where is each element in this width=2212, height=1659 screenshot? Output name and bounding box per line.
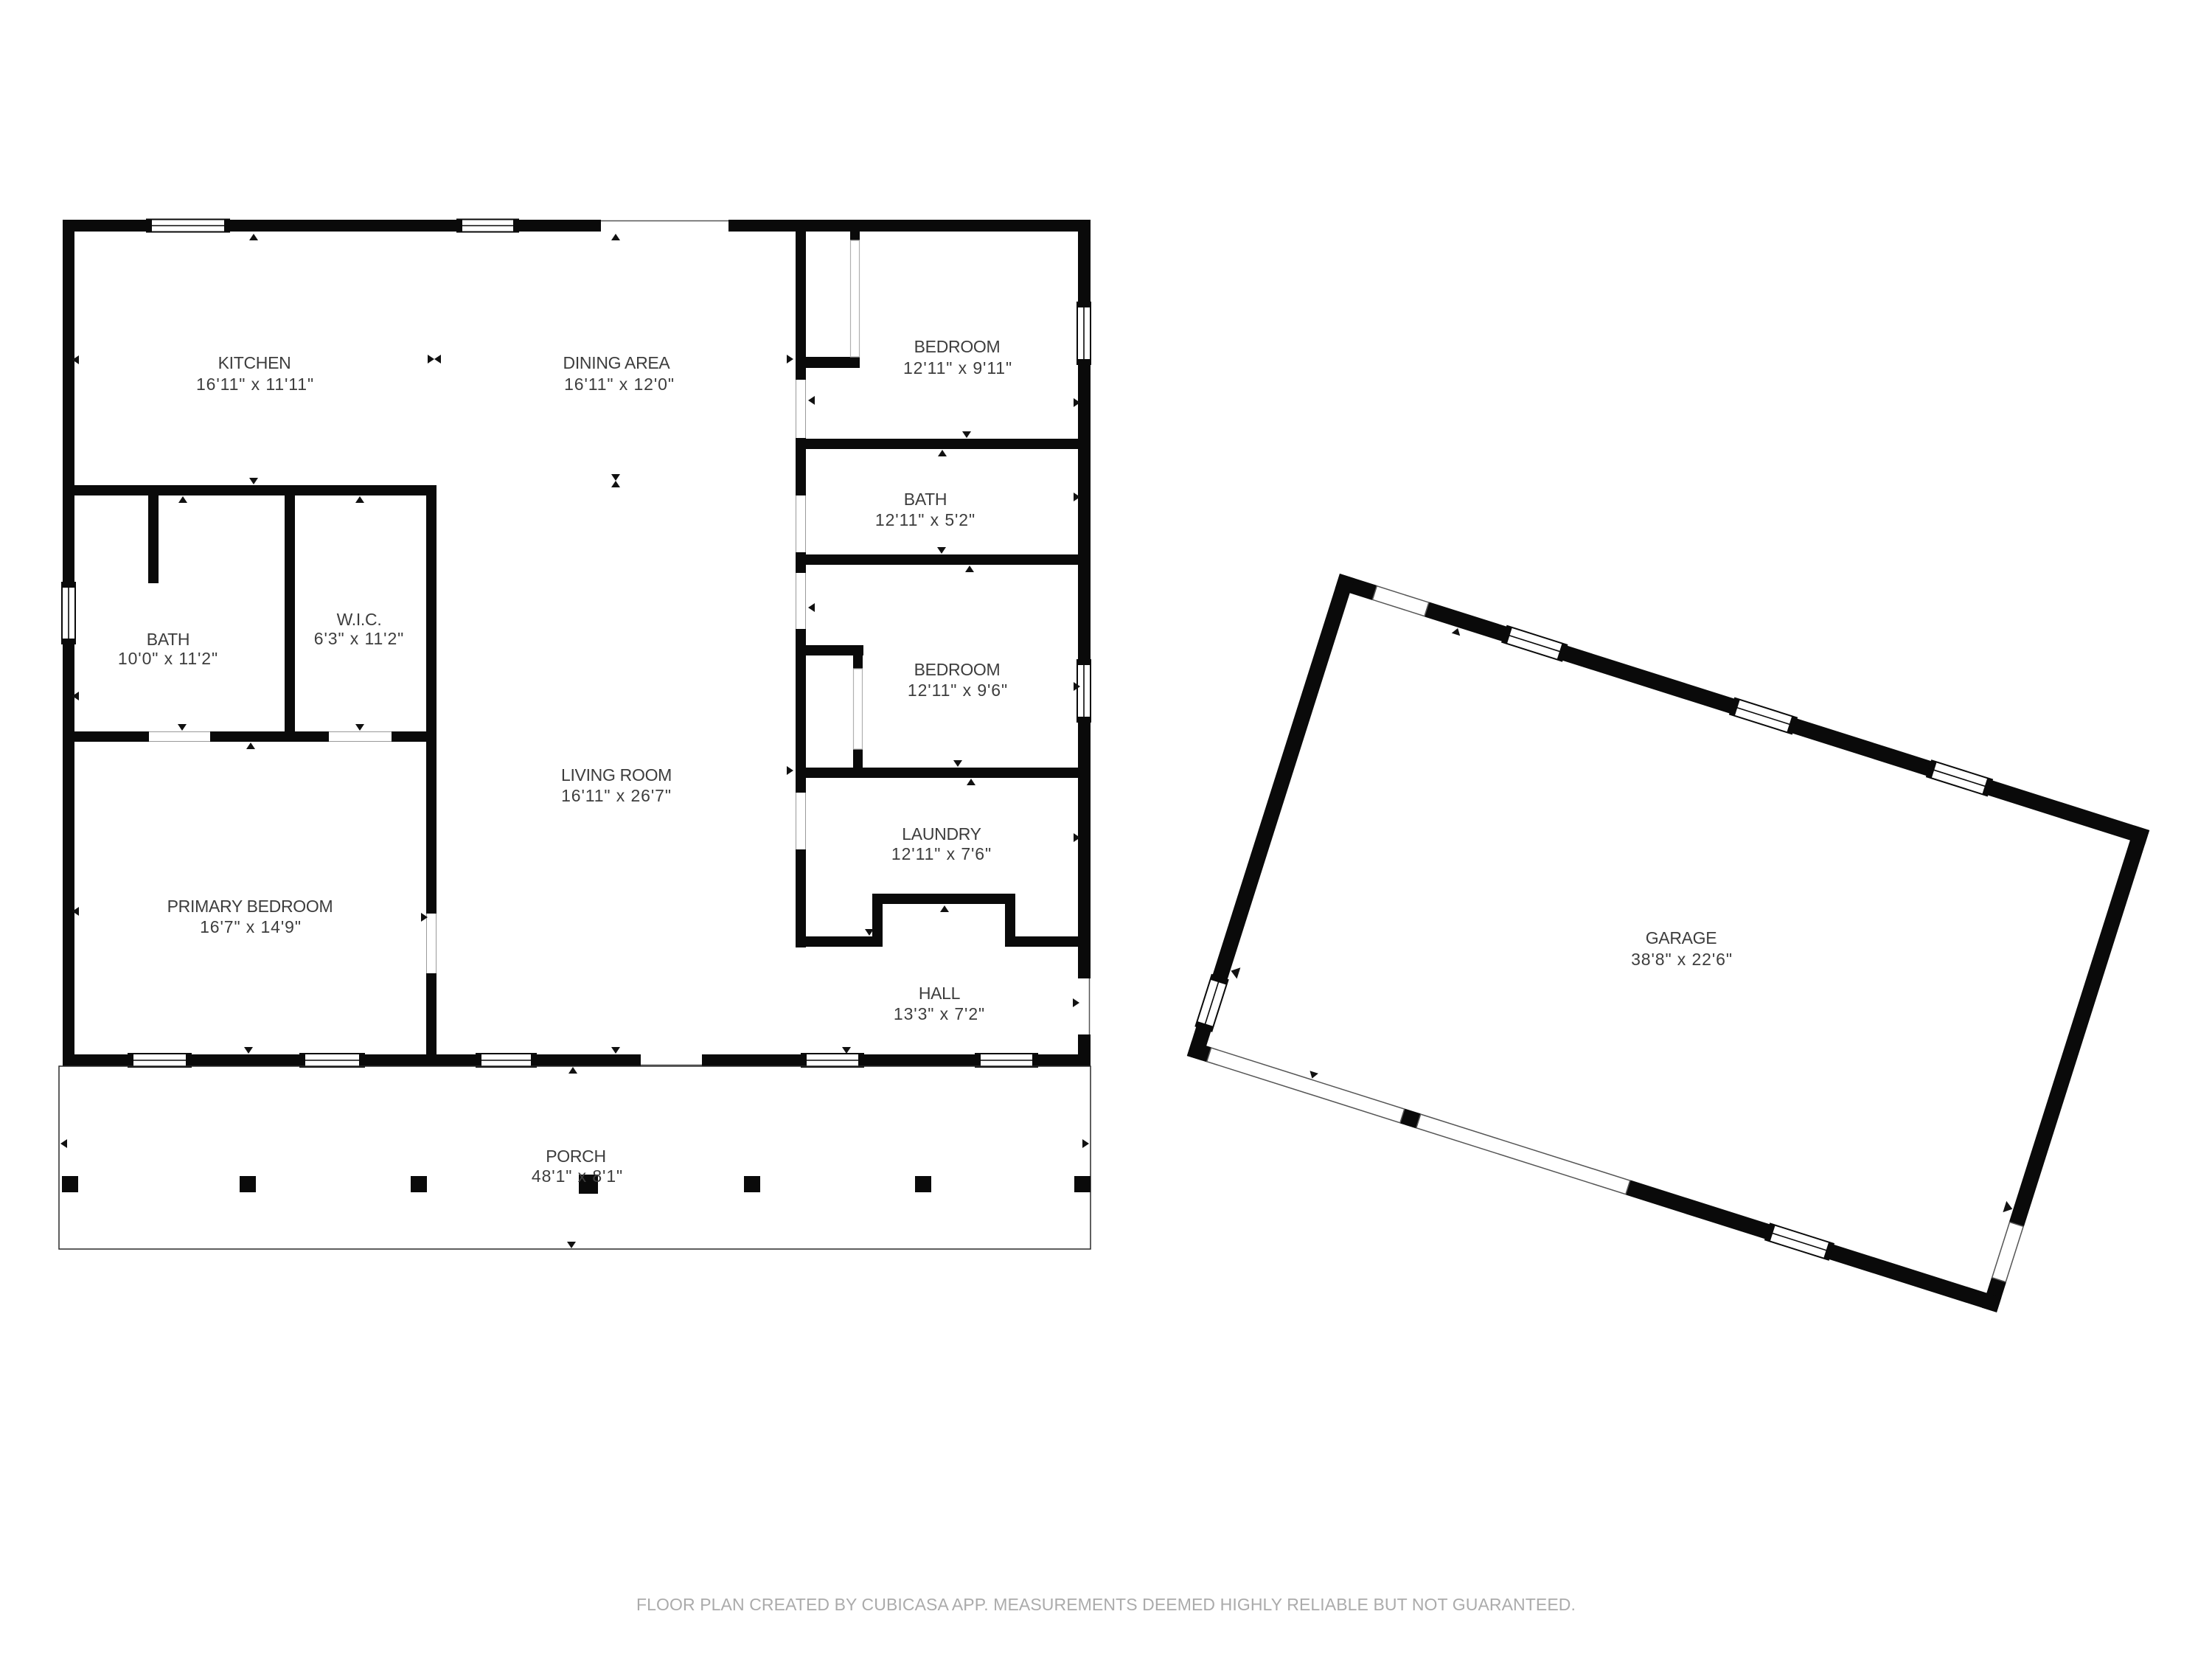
svg-text:16'7" x 14'9": 16'7" x 14'9" (200, 917, 302, 936)
svg-text:BATH: BATH (147, 630, 189, 649)
svg-text:12'11" x 5'2": 12'11" x 5'2" (875, 510, 975, 529)
svg-text:12'11" x 9'11": 12'11" x 9'11" (903, 358, 1012, 378)
svg-text:PORCH: PORCH (546, 1147, 606, 1166)
svg-text:FLOOR PLAN CREATED BY CUBICASA: FLOOR PLAN CREATED BY CUBICASA APP. MEAS… (636, 1595, 1576, 1614)
svg-text:10'0" x 11'2": 10'0" x 11'2" (118, 649, 218, 668)
svg-text:38'8" x 22'6": 38'8" x 22'6" (1631, 950, 1733, 969)
svg-text:16'11" x 11'11": 16'11" x 11'11" (196, 375, 314, 394)
svg-text:13'3" x 7'2": 13'3" x 7'2" (894, 1004, 985, 1023)
svg-text:DINING AREA: DINING AREA (563, 353, 671, 372)
svg-text:LIVING ROOM: LIVING ROOM (561, 765, 672, 785)
svg-text:BEDROOM: BEDROOM (914, 337, 1001, 356)
svg-text:48'1" x 8'1": 48'1" x 8'1" (532, 1166, 623, 1186)
svg-text:GARAGE: GARAGE (1646, 928, 1717, 947)
svg-text:PRIMARY BEDROOM: PRIMARY BEDROOM (167, 897, 333, 916)
svg-text:6'3" x 11'2": 6'3" x 11'2" (314, 629, 404, 648)
svg-text:BATH: BATH (904, 490, 947, 509)
svg-text:12'11" x 9'6": 12'11" x 9'6" (908, 681, 1008, 700)
svg-text:12'11" x 7'6": 12'11" x 7'6" (891, 844, 992, 863)
svg-text:W.I.C.: W.I.C. (337, 610, 382, 629)
svg-text:16'11" x 26'7": 16'11" x 26'7" (561, 786, 672, 805)
svg-text:16'11" x 12'0": 16'11" x 12'0" (564, 375, 675, 394)
svg-text:BEDROOM: BEDROOM (914, 660, 1001, 679)
svg-text:HALL: HALL (919, 984, 961, 1003)
svg-text:LAUNDRY: LAUNDRY (902, 824, 981, 844)
svg-text:KITCHEN: KITCHEN (218, 353, 291, 372)
